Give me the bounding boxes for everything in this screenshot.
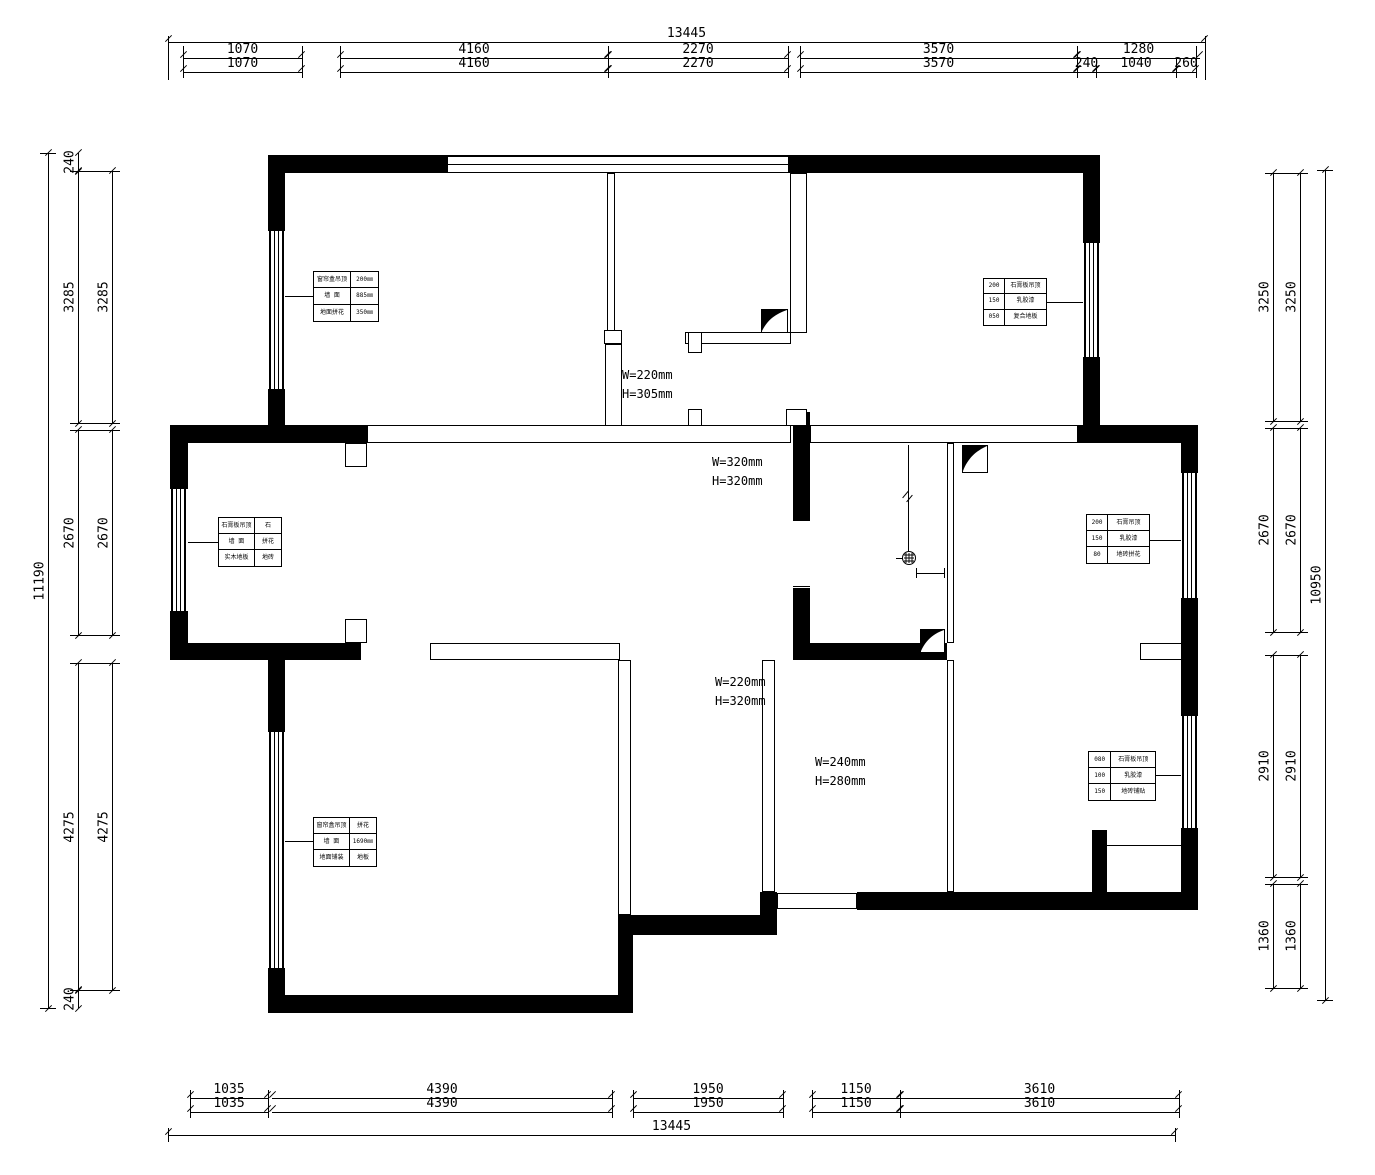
spec-cell: 地砖 — [255, 550, 281, 566]
wall-segment — [170, 643, 360, 660]
dim-label: 1950 — [692, 1082, 723, 1097]
spec-cell: 窗帘盒吊顶 — [314, 272, 351, 288]
table-leader — [1047, 302, 1083, 303]
dim-label: 11190 — [33, 561, 48, 600]
spec-cell: 150 — [1087, 531, 1108, 547]
wall-size-annotation: W=240mmH=280mm — [815, 753, 866, 791]
door-jamb-line — [793, 520, 810, 521]
dim-label: 3250 — [1285, 281, 1300, 312]
wall-segment — [793, 412, 810, 520]
dim-label: 2270 — [682, 56, 713, 71]
dim-segment: 4275 — [78, 663, 79, 990]
spec-cell: 墙 面 — [314, 834, 350, 850]
dim-label: 1950 — [692, 1096, 723, 1111]
extension-line — [302, 46, 303, 78]
extension-line — [1176, 58, 1177, 78]
spec-cell: 100 — [1089, 768, 1111, 784]
extension-line — [1205, 36, 1206, 80]
partition-wall — [367, 425, 791, 443]
dim-label: 3570 — [923, 42, 954, 57]
table-leader — [1156, 775, 1181, 776]
wall-size-annotation: W=320mmH=320mm — [712, 453, 763, 491]
door-jamb — [688, 409, 702, 426]
spec-cell: 拼花 — [350, 818, 376, 834]
partition-wall — [947, 660, 954, 892]
dim-segment: 3285 — [112, 171, 113, 423]
partition-wall — [947, 443, 954, 643]
extension-line — [1317, 1000, 1333, 1001]
spec-table: 200石膏板吊顶 150乳胶漆 050复合地板 — [983, 278, 1047, 326]
dim-segment: 2670 — [112, 430, 113, 635]
dim-label: 3285 — [97, 281, 112, 312]
dim-label: 3610 — [1024, 1082, 1055, 1097]
extension-line — [1265, 421, 1308, 422]
dim-segment: 2670 — [1273, 428, 1274, 632]
extension-line — [70, 635, 120, 636]
dim-label: 2270 — [682, 42, 713, 57]
extension-line — [1265, 428, 1308, 429]
extension-line — [340, 46, 341, 78]
dim-label: 2910 — [1258, 750, 1273, 781]
dim-label: 4160 — [458, 56, 489, 71]
dim-segment: 1070 — [183, 72, 302, 73]
dim-segment: 1360 — [1300, 884, 1301, 988]
spec-table: 窗帘盒吊顶200㎜ 墙 面885㎜ 地面拼花350㎜ — [313, 271, 379, 322]
partition-wall — [607, 173, 615, 333]
spec-cell: 885㎜ — [351, 288, 378, 304]
dim-segment: 1360 — [1273, 884, 1274, 988]
dim-label: 13445 — [652, 1119, 691, 1134]
extension-line — [1265, 877, 1308, 878]
partition-wall — [618, 660, 631, 915]
spec-cell: 150 — [1089, 784, 1111, 800]
spec-cell: 350㎜ — [351, 305, 378, 321]
spec-cell: 石膏吊顶 — [1108, 515, 1149, 531]
spec-cell: 地面铺装 — [314, 850, 350, 866]
spec-cell: 200 — [984, 279, 1005, 294]
leader-line — [916, 573, 944, 574]
dim-label: 4390 — [426, 1082, 457, 1097]
dim-label: 2910 — [1285, 750, 1300, 781]
annotation-line: W=220mm — [622, 368, 673, 382]
dim-label: 1150 — [840, 1082, 871, 1097]
dim-segment: 4275 — [112, 663, 113, 990]
recess-line — [1107, 845, 1181, 846]
spec-cell: 石膏板吊顶 — [1005, 279, 1046, 294]
extension-line — [1175, 1128, 1176, 1142]
window-strip — [269, 231, 284, 389]
extension-line — [1179, 1090, 1180, 1118]
dim-segment: 2910 — [1273, 655, 1274, 877]
dim-segment: 1040 — [1096, 72, 1176, 73]
dim-segment: 3570 — [800, 72, 1077, 73]
extension-line — [800, 46, 801, 78]
wall-size-annotation: W=220mmH=320mm — [715, 673, 766, 711]
dim-segment: 10950 — [1325, 170, 1326, 1000]
dim-label: 2670 — [1285, 514, 1300, 545]
extension-line — [70, 423, 120, 424]
dim-label: 3285 — [63, 281, 78, 312]
extension-line — [183, 46, 184, 78]
wall-segment — [170, 425, 188, 489]
annotation-line: W=220mm — [715, 675, 766, 689]
extension-line — [1265, 988, 1308, 989]
dim-label: 1360 — [1258, 920, 1273, 951]
extension-line — [783, 1090, 784, 1118]
spec-cell: 拼花 — [255, 534, 281, 550]
annotation-line: W=240mm — [815, 755, 866, 769]
dim-label: 2670 — [97, 517, 112, 548]
spec-cell: 墙 面 — [314, 288, 351, 304]
dim-segment: 1035 — [190, 1112, 268, 1113]
extension-line — [1265, 173, 1308, 174]
annotation-line: H=305mm — [622, 387, 673, 401]
dim-segment: 3610 — [900, 1112, 1179, 1113]
dim-label: 1280 — [1123, 42, 1154, 57]
wall-size-annotation: W=220mmH=305mm — [622, 366, 673, 404]
flue-shaft-icon — [920, 629, 945, 657]
dim-segment: 4390 — [272, 1112, 612, 1113]
extension-line — [1077, 46, 1078, 78]
extension-line — [788, 46, 789, 78]
annotation-line: W=320mm — [712, 455, 763, 469]
spec-cell: 石 — [255, 518, 281, 534]
spec-cell: 乳胶漆 — [1108, 531, 1149, 547]
annotation-line: H=320mm — [712, 474, 763, 488]
wall-segment — [268, 155, 285, 231]
floor-plan-sheet: 13445 1070 4160 2270 3570 1280 1070 4160… — [0, 0, 1375, 1175]
spec-cell: 乳胶漆 — [1111, 768, 1155, 784]
spec-table: 080石膏板吊顶 100乳胶漆 150地砖铺贴 — [1088, 751, 1156, 801]
dim-segment: 2670 — [1300, 428, 1301, 632]
dim-label: 13445 — [667, 26, 706, 41]
table-leader — [285, 296, 313, 297]
extension-line — [1265, 655, 1308, 656]
partition-wall — [810, 425, 1078, 443]
dim-label: 3250 — [1258, 281, 1273, 312]
extension-line — [70, 990, 120, 991]
dim-label: 4390 — [426, 1096, 457, 1111]
spec-cell: 地面拼花 — [314, 305, 351, 321]
spec-cell: 实木地板 — [219, 550, 255, 566]
column-stub — [345, 619, 367, 643]
spec-cell: 乳胶漆 — [1005, 294, 1046, 309]
spec-table: 石膏板吊顶石 墙 面拼花 实木地板地砖 — [218, 517, 282, 567]
extension-line — [70, 663, 120, 664]
dim-segment: 4160 — [340, 72, 608, 73]
dim-label: 1035 — [213, 1082, 244, 1097]
extension-line — [70, 171, 120, 172]
annotation-line: H=280mm — [815, 774, 866, 788]
extension-line — [168, 1128, 169, 1142]
wall-segment — [268, 660, 285, 732]
dim-label: 1360 — [1285, 920, 1300, 951]
dim-label: 260 — [1174, 56, 1197, 71]
extension-line — [268, 1090, 269, 1118]
dim-segment: 1150 — [812, 1112, 900, 1113]
extension-line — [1265, 884, 1308, 885]
wall-segment — [268, 995, 633, 1013]
extension-line — [40, 1008, 56, 1009]
extension-line — [1317, 170, 1333, 171]
entry-door-opening — [777, 893, 857, 909]
dim-segment: 13445 — [168, 1135, 1175, 1136]
dim-segment: 240 — [78, 990, 79, 1008]
wall-segment — [1092, 830, 1107, 910]
wall-segment — [268, 155, 448, 173]
spec-cell: 200 — [1087, 515, 1108, 531]
dim-segment: 2670 — [78, 430, 79, 635]
dim-segment: 3250 — [1273, 173, 1274, 421]
extension-line — [40, 153, 56, 154]
spec-cell: 1690㎜ — [350, 834, 376, 850]
spec-cell: 复合地板 — [1005, 310, 1046, 325]
table-leader — [188, 542, 218, 543]
dim-label: 1040 — [1120, 56, 1151, 71]
wall-segment — [760, 892, 777, 935]
counter-jamb — [688, 332, 702, 353]
spec-cell: 150 — [984, 294, 1005, 309]
spec-cell: 石膏板吊顶 — [1111, 752, 1155, 768]
extension-line — [812, 1090, 813, 1118]
window-strip — [1084, 243, 1099, 357]
dim-label: 2670 — [1258, 514, 1273, 545]
extension-line — [190, 1090, 191, 1118]
extension-line — [168, 36, 169, 80]
dim-segment: 260 — [1176, 72, 1196, 73]
partition-wall — [605, 344, 622, 426]
table-leader — [285, 841, 313, 842]
spec-cell: 080 — [1089, 752, 1111, 768]
wall-segment — [857, 892, 1198, 910]
door-jamb-line — [360, 643, 361, 660]
wall-segment — [788, 155, 1100, 173]
wall-segment — [1078, 425, 1198, 443]
dim-label: 4275 — [63, 811, 78, 842]
dim-label: 4160 — [458, 42, 489, 57]
partition-wall — [604, 330, 622, 344]
extension-line — [633, 1090, 634, 1118]
spec-cell: 地砖铺贴 — [1111, 784, 1155, 800]
dim-label: 3570 — [923, 56, 954, 71]
extension-line — [608, 46, 609, 78]
extension-line — [70, 430, 120, 431]
window-strip — [448, 155, 788, 173]
dim-segment: 2270 — [608, 72, 788, 73]
extension-line — [1265, 632, 1308, 633]
wall-segment — [1083, 155, 1100, 243]
wall-segment — [618, 915, 777, 935]
extension-line — [1196, 46, 1197, 78]
dim-label: 4275 — [97, 811, 112, 842]
partition-wall — [1140, 643, 1182, 660]
dim-label: 1150 — [840, 1096, 871, 1111]
door-jamb-line — [430, 643, 431, 660]
extension-line — [900, 1090, 901, 1118]
dim-label: 1070 — [227, 42, 258, 57]
wall-segment — [1181, 598, 1198, 716]
spec-table: 窗帘盒吊顶拼花 墙 面1690㎜ 地面铺装地板 — [313, 817, 377, 867]
window-strip — [1182, 716, 1197, 828]
dim-segment: 3285 — [78, 171, 79, 423]
dim-segment: 1950 — [633, 1112, 783, 1113]
spec-cell: 80 — [1087, 547, 1108, 563]
spec-cell: 200㎜ — [351, 272, 378, 288]
wall-segment — [1181, 425, 1198, 473]
annotation-line: H=320mm — [715, 694, 766, 708]
spec-cell: 石膏板吊顶 — [219, 518, 255, 534]
partition-wall — [430, 643, 620, 660]
wall-segment — [188, 425, 367, 443]
leader-tick — [944, 568, 945, 578]
dim-label: 2670 — [63, 517, 78, 548]
dim-label: 10950 — [1310, 565, 1325, 604]
extension-line — [1096, 58, 1097, 78]
window-strip — [269, 732, 284, 968]
partition-wall — [790, 173, 807, 333]
dim-segment: 2910 — [1300, 655, 1301, 877]
spec-cell: 地板 — [350, 850, 376, 866]
spec-cell: 窗帘盒吊顶 — [314, 818, 350, 834]
spec-cell: 地砖拼花 — [1108, 547, 1149, 563]
table-leader — [1150, 540, 1181, 541]
wall-segment — [793, 588, 810, 660]
door-jamb-line — [793, 586, 810, 587]
spec-cell: 墙 面 — [219, 534, 255, 550]
window-strip — [171, 489, 186, 611]
spec-table: 200石膏吊顶 150乳胶漆 80地砖拼花 — [1086, 514, 1150, 564]
dim-label: 3610 — [1024, 1096, 1055, 1111]
dim-label: 1070 — [227, 56, 258, 71]
flue-shaft-icon — [761, 309, 788, 337]
dim-segment: 3250 — [1300, 173, 1301, 421]
spec-cell: 050 — [984, 310, 1005, 325]
dim-segment: 11190 — [48, 153, 49, 1008]
column-stub — [345, 443, 367, 467]
window-strip — [1182, 473, 1197, 598]
floor-drain-icon — [901, 550, 917, 570]
extension-line — [612, 1090, 613, 1118]
door-jamb — [786, 409, 807, 426]
dim-label: 1035 — [213, 1096, 244, 1111]
flue-shaft-icon — [962, 445, 988, 477]
